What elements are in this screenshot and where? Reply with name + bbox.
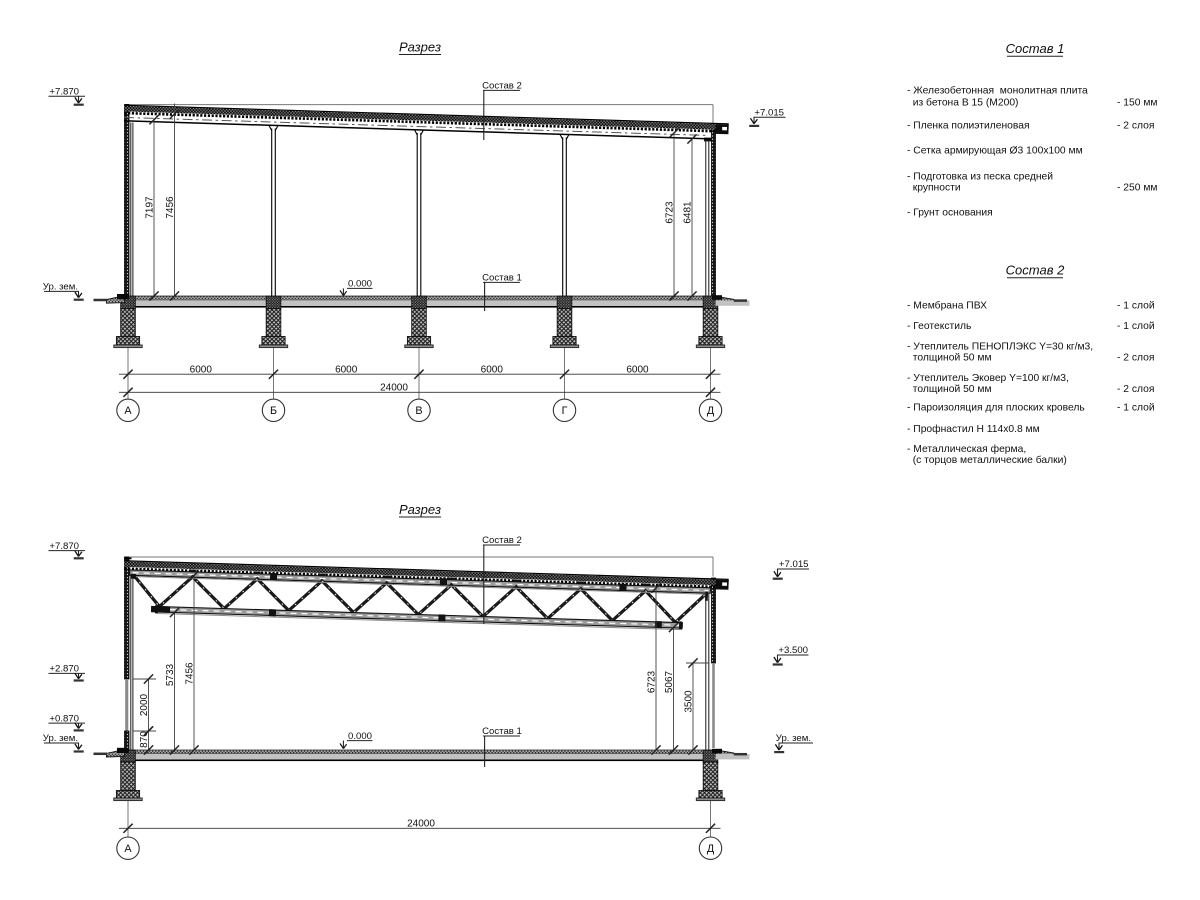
svg-text:Д: Д [707,843,715,855]
svg-text:крупности: крупности [907,183,961,194]
svg-text:- Сетка армирующая Ø3 100x100: - Сетка армирующая Ø3 100x100 мм [907,146,1083,157]
svg-text:6000: 6000 [626,364,649,375]
svg-text:7456: 7456 [184,662,195,685]
svg-text:5733: 5733 [165,663,176,686]
svg-text:- Железобетонная монолитная п: - Железобетонная монолитная плита [907,85,1088,97]
svg-text:7456: 7456 [165,196,176,219]
svg-text:(с торцов металлические балки): (с торцов металлические балки) [907,454,1067,466]
svg-text:- 1 слой: - 1 слой [1117,403,1155,414]
svg-text:Б: Б [270,405,277,417]
svg-text:- 2 слоя: - 2 слоя [1117,353,1154,364]
svg-text:- Грунт основания: - Грунт основания [907,208,993,219]
svg-text:6000: 6000 [190,364,213,375]
svg-text:толщиной 50 мм: толщиной 50 мм [907,353,992,364]
svg-text:А: А [124,843,132,855]
svg-text:А: А [124,405,132,417]
svg-text:870: 870 [139,731,150,748]
svg-text:- Мембрана ПВХ: - Мембрана ПВХ [907,299,987,311]
svg-text:- Подготовка из песка средней: - Подготовка из песка средней [907,172,1053,183]
svg-text:- 250 мм: - 250 мм [1117,183,1158,194]
svg-text:из бетона В 15 (М200): из бетона В 15 (М200) [907,96,1018,108]
svg-text:В: В [415,405,422,417]
svg-text:Разрез: Разрез [399,502,441,517]
svg-text:- 1 слой: - 1 слой [1117,321,1155,332]
svg-text:Состав 1: Состав 1 [1006,41,1065,56]
svg-text:Г: Г [562,405,568,417]
svg-text:24000: 24000 [407,818,435,829]
svg-text:Д: Д [707,405,715,417]
svg-text:Состав 2: Состав 2 [1006,263,1065,278]
svg-text:7197: 7197 [144,196,155,219]
svg-text:- Профнастил Н 114x0.8 мм: - Профнастил Н 114x0.8 мм [907,423,1040,435]
svg-text:6723: 6723 [664,201,675,224]
svg-text:- Геотекстиль: - Геотекстиль [907,321,971,332]
svg-text:6000: 6000 [481,364,504,375]
svg-text:- Утеплитель ПЕНОПЛЭКС Y=30 кг: - Утеплитель ПЕНОПЛЭКС Y=30 кг/м3, [907,342,1093,353]
svg-text:2000: 2000 [139,693,150,716]
svg-text:- 1 слой: - 1 слой [1117,300,1155,311]
svg-text:6723: 6723 [646,670,657,693]
svg-text:3500: 3500 [683,690,694,713]
svg-text:24000: 24000 [380,382,408,393]
svg-text:- Пароизоляция для плоских кро: - Пароизоляция для плоских кровель [907,403,1085,414]
svg-text:6481: 6481 [682,201,693,224]
svg-text:- Металлическая ферма,: - Металлическая ферма, [907,443,1026,455]
svg-text:5067: 5067 [664,670,675,693]
svg-text:- 2 слоя: - 2 слоя [1117,384,1154,395]
svg-text:Разрез: Разрез [399,40,441,55]
svg-text:- 150 мм: - 150 мм [1117,97,1158,108]
svg-text:толщиной 50 мм: толщиной 50 мм [907,384,992,395]
svg-text:6000: 6000 [335,364,358,375]
svg-text:- 2 слоя: - 2 слоя [1117,121,1154,132]
svg-text:- Утеплитель Эковер Y=100 кг/м: - Утеплитель Эковер Y=100 кг/м3, [907,373,1069,384]
svg-text:- Пленка полиэтиленовая: - Пленка полиэтиленовая [907,121,1030,132]
